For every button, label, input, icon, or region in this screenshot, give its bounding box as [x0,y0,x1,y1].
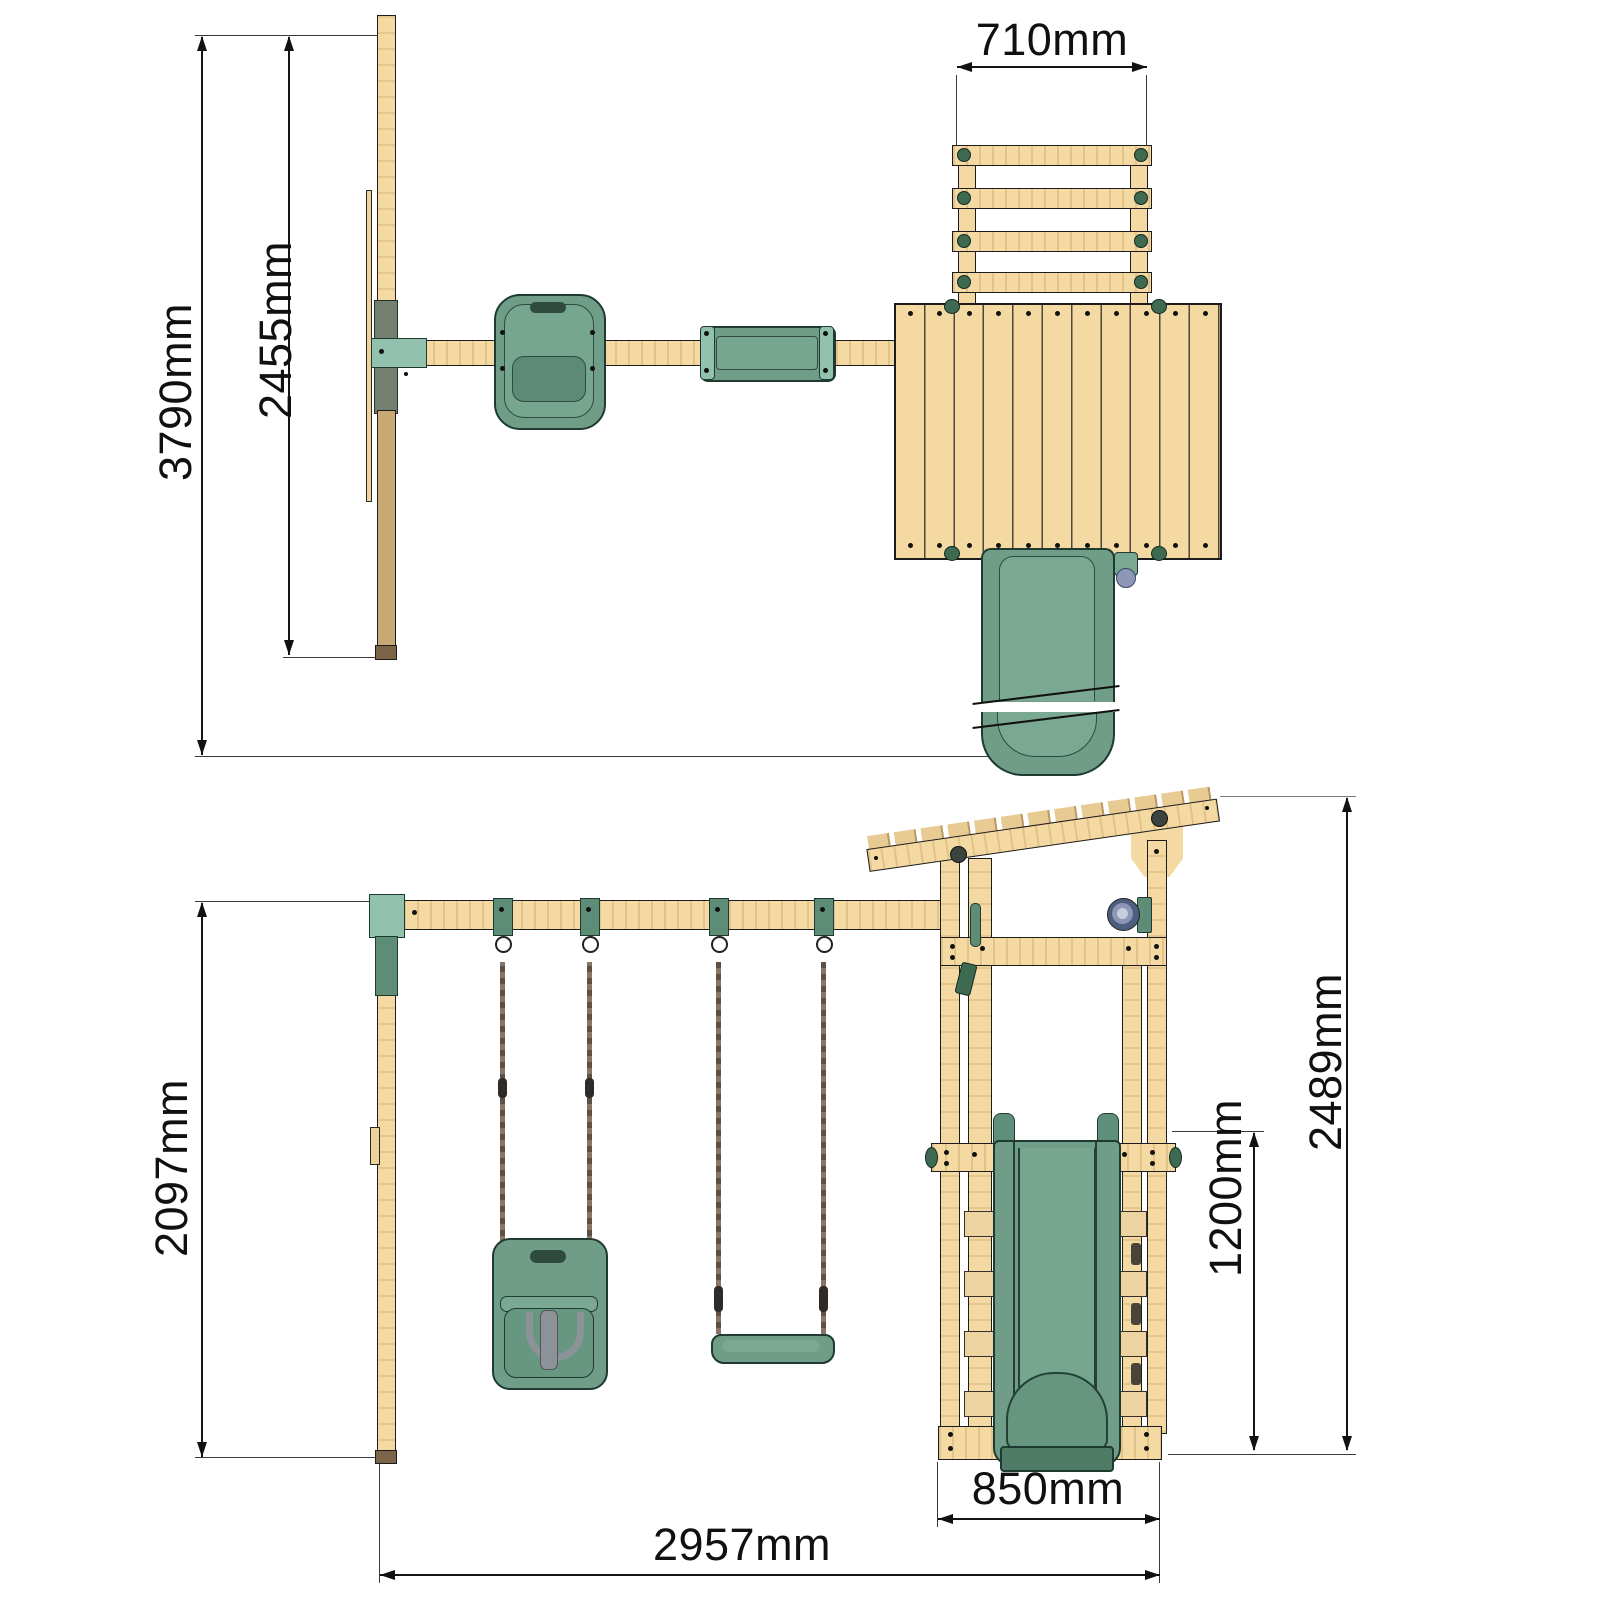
rope-sleeve [819,1286,828,1312]
arrow-right-icon [1145,1514,1160,1524]
rung-cap [1134,234,1148,248]
rung-cap [1134,148,1148,162]
ext-line [1220,796,1356,797]
ladder-rung-plan [952,188,1152,209]
swing-rope [716,962,721,1334]
roof-bolt [950,846,967,863]
arrow-up-icon [1342,797,1352,812]
telescope-lens-plan [1116,568,1136,588]
hand-hold-slot [1131,1363,1141,1385]
rope-sleeve [498,1078,507,1098]
tower-post-right-inner [1122,940,1142,1434]
bolt-row [948,1432,953,1437]
shackle-ring [582,936,599,953]
swing-hanger [580,898,600,936]
ext-line [195,1457,377,1458]
bolt [820,907,825,912]
ladder-rung-plan [952,145,1152,166]
dim-2097-line [201,903,203,1457]
bolt [704,368,709,373]
dim-1200-line [1253,1133,1255,1450]
swing-seat-face [722,1340,820,1352]
dim-tower-width-label: 850mm [972,1463,1125,1515]
arrow-down-icon [197,740,207,755]
post-bracket-front [375,936,398,996]
rail-end-cap [925,1147,938,1168]
arrow-right-icon [1132,62,1147,72]
bolt-row [908,543,913,548]
dim-platform-height-label: 1200mm [1200,1099,1252,1277]
platform-plan [894,303,1222,560]
bolt [823,331,828,336]
post-tab [370,1127,380,1165]
dim-ladder-width-label: 710mm [976,14,1129,66]
post-cap-plan [944,299,960,314]
swing-seat-rib-plan [716,336,818,370]
bolt [1154,849,1159,854]
rung-cap [957,148,971,162]
arrow-left-icon [380,1570,395,1580]
swing-post-cap-plan [375,645,397,660]
rung-cap [957,191,971,205]
arrow-up-icon [197,36,207,51]
ext-line [1146,75,1147,145]
ext-line [1168,1454,1356,1455]
arrow-right-icon [1145,1570,1160,1580]
arrow-up-icon [284,36,294,51]
swing-post-plan-lower [377,410,396,649]
bolt [823,368,828,373]
climbing-rung [964,1331,994,1357]
roof-bolt [1151,810,1168,827]
bolt-row [908,311,913,316]
baby-seat-tbar [540,1310,558,1370]
bolt [404,372,408,376]
dim-swing-frame-height-label: 2097mm [146,1079,198,1257]
bolt [499,907,504,912]
bolt [500,330,505,335]
arrow-down-icon [1342,1436,1352,1451]
bolt [1205,806,1209,810]
arrow-down-icon [1249,1436,1259,1451]
ext-line [195,756,998,757]
shackle-ring [495,936,512,953]
swing-rope [500,962,505,1242]
bolt [412,910,417,915]
arrow-left-icon [957,62,972,72]
dim-overall-height-label: 2489mm [1300,973,1352,1151]
rung-cap [957,234,971,248]
rope-sleeve [585,1078,594,1098]
baby-seat-handle-plan [530,302,566,313]
telescope-lens [1117,908,1128,919]
handle-grip [970,903,981,947]
climbing-rung [964,1271,994,1297]
hand-hold-slot [1131,1243,1141,1265]
bolt-row [944,1150,949,1155]
climbing-rung [964,1211,994,1237]
swing-rope [821,962,826,1334]
arrow-left-icon [938,1514,953,1524]
rung-cap [1134,275,1148,289]
swing-post-bracket-plan [374,362,398,414]
hand-hold-slot [1131,1303,1141,1325]
post-bracket-front [369,894,405,938]
technical-drawing-canvas: 3790mm 2455mm [0,0,1600,1600]
post-cap-plan [944,546,960,561]
rung-cap [1134,191,1148,205]
bolt [590,330,595,335]
baby-seat-back-plan [512,356,586,402]
arrow-up-icon [197,902,207,917]
bolt [586,907,591,912]
dim-swing-bay-depth-label: 2455mm [250,241,302,419]
ladder-rung-plan [952,231,1152,252]
dim-overall-width-label: 2957mm [653,1519,831,1571]
ext-line [379,1462,380,1583]
swing-beam-front [390,900,942,930]
ext-line [195,901,377,902]
arrow-down-icon [284,640,294,655]
swing-rope [587,962,592,1242]
ext-line [195,35,393,36]
swing-hanger [493,898,513,936]
bolt [590,366,595,371]
bolt [874,856,878,860]
dim-850-line [938,1518,1160,1520]
rope-sleeve [714,1286,723,1312]
bolt [715,907,720,912]
swing-post-plan-upper [377,15,396,307]
ladder-rung-plan [952,272,1152,293]
shackle-ring [711,936,728,953]
bolt [704,331,709,336]
climbing-rung [964,1391,994,1417]
slide-chute-plan [999,556,1095,701]
dim-2957-line [380,1574,1160,1576]
bolt [379,349,384,354]
dim-overall-depth-label: 3790mm [150,303,202,481]
arrow-down-icon [197,1442,207,1457]
post-cap-plan [1151,299,1167,314]
baby-seat-handle-slot [530,1250,566,1263]
ext-line [956,75,957,145]
post-cap-plan [1151,546,1167,561]
bolt-row [950,944,955,949]
shackle-ring [816,936,833,953]
bolt [500,366,505,371]
rung-cap [957,275,971,289]
dim-710-line [957,66,1147,68]
rail-end-cap [1169,1147,1182,1168]
swing-hanger [709,898,729,936]
swing-hanger [814,898,834,936]
